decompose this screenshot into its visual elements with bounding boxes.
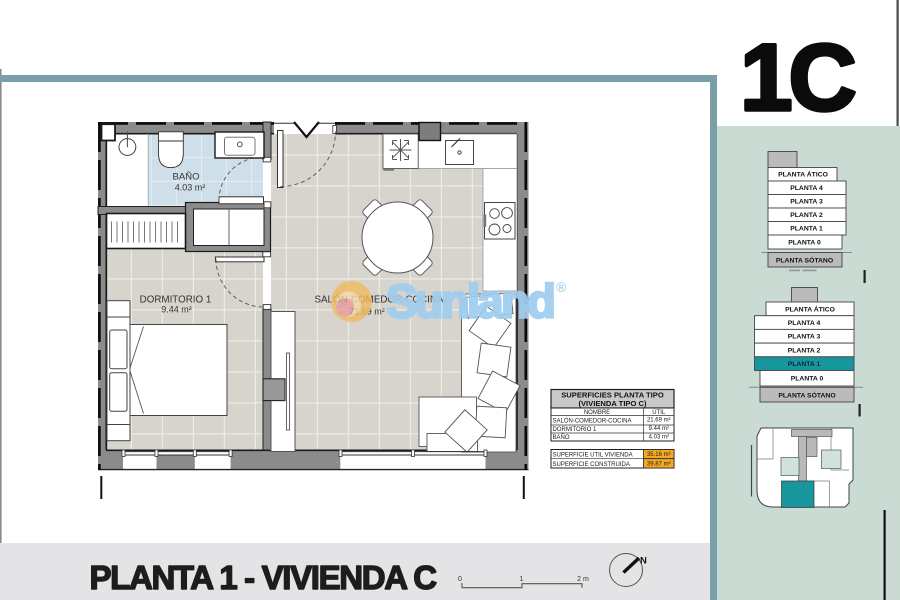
svg-text:PLANTA 4: PLANTA 4 — [788, 320, 821, 327]
svg-text:DORMITORIO 1: DORMITORIO 1 — [553, 427, 598, 433]
svg-text:Sunland: Sunland — [386, 275, 553, 328]
svg-text:9.44 m²: 9.44 m² — [161, 304, 192, 314]
svg-text:21.69 m²: 21.69 m² — [647, 418, 671, 424]
svg-text:9.44 m²: 9.44 m² — [649, 426, 669, 432]
svg-text:SALÓN-COMEDOR-COCINA: SALÓN-COMEDOR-COCINA — [553, 418, 632, 425]
svg-text:4.03 m²: 4.03 m² — [175, 183, 206, 193]
svg-text:1: 1 — [520, 576, 524, 583]
svg-text:1C: 1C — [740, 25, 855, 131]
svg-text:PLANTA 1: PLANTA 1 — [790, 226, 823, 233]
svg-text:0: 0 — [458, 576, 462, 583]
svg-text:BAÑO: BAÑO — [553, 434, 570, 441]
svg-text:PLANTA ÁTICO: PLANTA ÁTICO — [785, 304, 835, 313]
svg-text:SUPERFICIE UTIL VIVIENDA: SUPERFICIE UTIL VIVIENDA — [553, 453, 633, 459]
svg-text:®: ® — [556, 279, 567, 295]
svg-text:N: N — [640, 556, 647, 567]
svg-text:PLANTA 1 - VIVIENDA C: PLANTA 1 - VIVIENDA C — [90, 559, 437, 596]
svg-text:PLANTA 3: PLANTA 3 — [788, 334, 821, 341]
svg-text:4.03 m²: 4.03 m² — [649, 435, 669, 441]
svg-text:PLANTA SÓTANO: PLANTA SÓTANO — [778, 390, 835, 399]
svg-text:PLANTA 3: PLANTA 3 — [790, 199, 823, 206]
svg-text:ÚTIL: ÚTIL — [652, 409, 666, 416]
svg-text:PLANTA 2: PLANTA 2 — [790, 212, 823, 219]
svg-text:35.16 m²: 35.16 m² — [647, 452, 671, 458]
svg-text:PLANTA 0: PLANTA 0 — [788, 240, 821, 247]
svg-text:PLANTA 2: PLANTA 2 — [788, 347, 821, 354]
svg-text:PLANTA 0: PLANTA 0 — [791, 376, 824, 383]
svg-text:SUPERFICIE CONSTRUIDA: SUPERFICIE CONSTRUIDA — [553, 462, 630, 468]
svg-text:(VIVIENDA TIPO C): (VIVIENDA TIPO C) — [578, 399, 647, 408]
svg-text:39.87 m²: 39.87 m² — [647, 461, 671, 467]
svg-text:2 m: 2 m — [577, 576, 589, 583]
svg-text:BAÑO: BAÑO — [173, 172, 200, 183]
svg-text:PLANTA ÁTICO: PLANTA ÁTICO — [778, 170, 828, 179]
svg-text:PLANTA 4: PLANTA 4 — [790, 185, 823, 192]
svg-text:PLANTA SÓTANO: PLANTA SÓTANO — [776, 255, 833, 264]
svg-text:PLANTA 1: PLANTA 1 — [788, 361, 821, 368]
svg-text:NOMBRE: NOMBRE — [584, 410, 610, 416]
